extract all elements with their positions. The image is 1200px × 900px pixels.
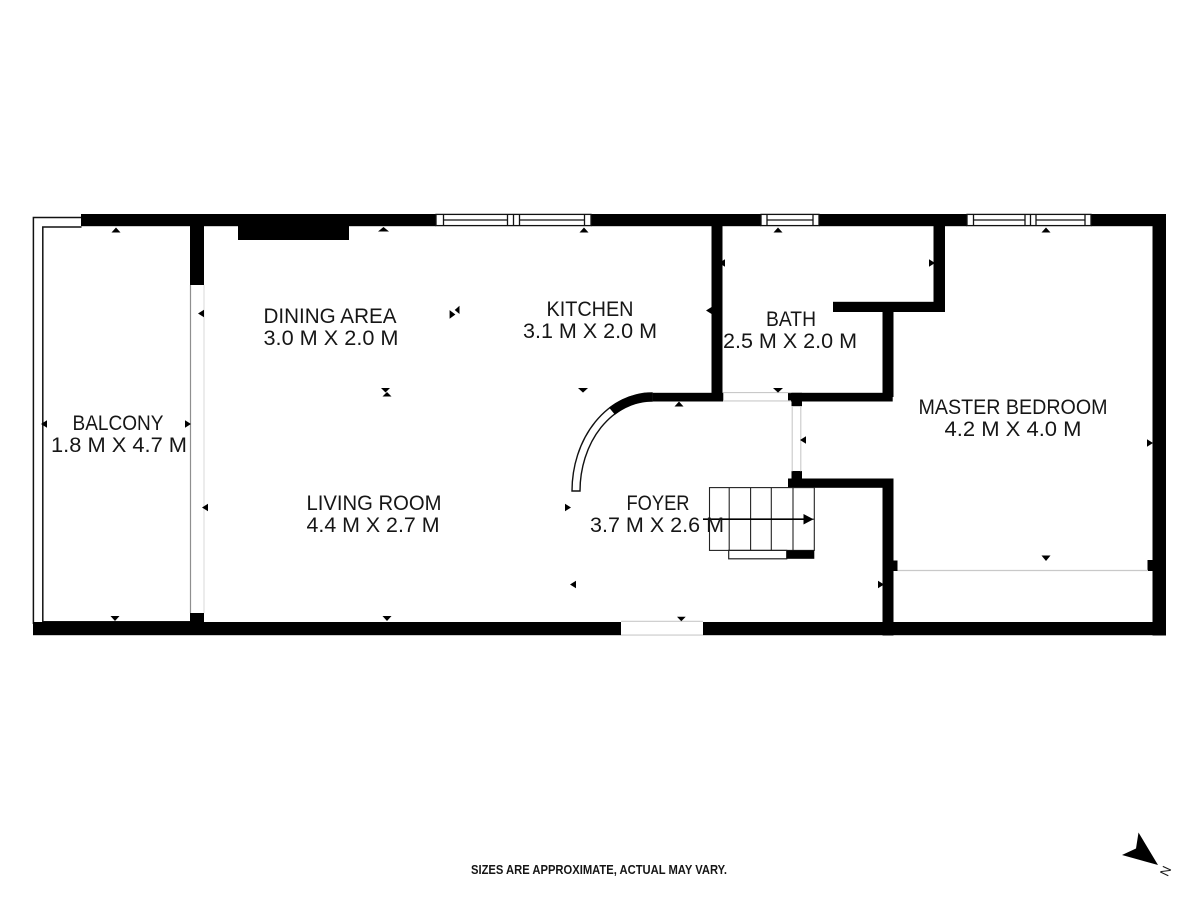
svg-text:2.5 M X 2.0 M: 2.5 M X 2.0 M xyxy=(723,330,857,353)
svg-text:3.0 M X 2.0 M: 3.0 M X 2.0 M xyxy=(264,327,399,350)
svg-text:SIZES ARE APPROXIMATE, ACTUAL: SIZES ARE APPROXIMATE, ACTUAL MAY VARY. xyxy=(471,862,727,877)
svg-text:BATH: BATH xyxy=(766,308,816,331)
svg-text:KITCHEN: KITCHEN xyxy=(547,298,634,321)
svg-text:BALCONY: BALCONY xyxy=(73,412,164,435)
svg-text:3.7 M X 2.6 M: 3.7 M X 2.6 M xyxy=(590,514,724,537)
svg-text:FOYER: FOYER xyxy=(627,492,690,515)
svg-text:1.8 M X 4.7 M: 1.8 M X 4.7 M xyxy=(51,434,187,457)
svg-text:3.1 M X 2.0 M: 3.1 M X 2.0 M xyxy=(523,320,657,343)
svg-text:DINING AREA: DINING AREA xyxy=(264,305,397,328)
svg-text:4.4 M X 2.7 M: 4.4 M X 2.7 M xyxy=(307,514,440,537)
svg-text:4.2 M X 4.0 M: 4.2 M X 4.0 M xyxy=(945,418,1082,441)
svg-text:MASTER BEDROOM: MASTER BEDROOM xyxy=(919,396,1108,419)
svg-text:LIVING ROOM: LIVING ROOM xyxy=(307,492,442,515)
